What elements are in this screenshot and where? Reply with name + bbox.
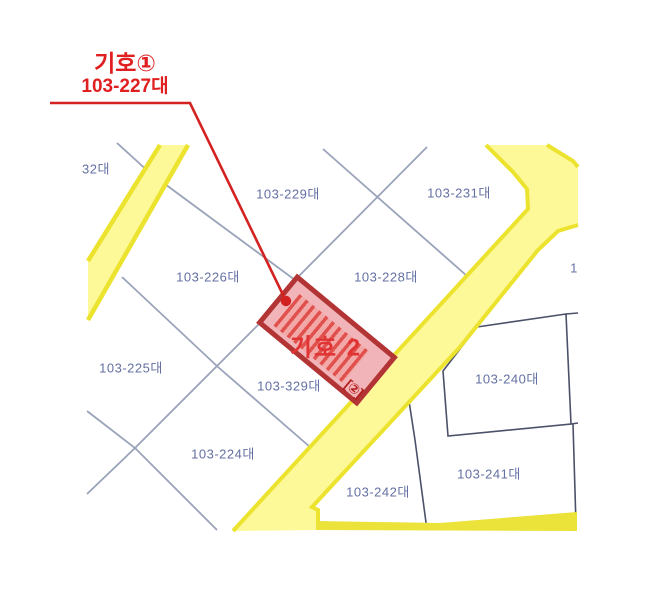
parcel-label-partial: 1 — [570, 261, 578, 276]
boundary-line — [87, 411, 217, 530]
boundary-line — [566, 313, 578, 314]
callout-title: 기호① — [81, 50, 168, 76]
circled-2-marker: [②] — [342, 377, 365, 399]
parcel-label-242: 103-242대 — [346, 482, 410, 501]
parcel-label-226: 103-226대 — [176, 267, 240, 286]
cadastral-map: [②] 기호 2 기호① 103-227대 32대 103-229대 103-2… — [0, 0, 654, 600]
parcel-label-232: 32대 — [82, 159, 110, 178]
boundary-line — [295, 147, 427, 280]
boundary-line — [87, 320, 263, 494]
parcel-label-228: 103-228대 — [354, 267, 418, 286]
parcel-label-224: 103-224대 — [191, 444, 255, 463]
callout-parcel-number: 103-227대 — [81, 76, 168, 98]
parcel-label-225: 103-225대 — [99, 358, 163, 377]
highlight-parcel-label: 기호 2 — [290, 328, 362, 363]
boundary-line — [323, 149, 467, 276]
boundary-line — [573, 424, 576, 525]
parcel-label-231: 103-231대 — [427, 183, 491, 202]
boundary-line — [571, 423, 578, 424]
road-bottom-edge-strip — [316, 512, 577, 531]
callout-text-block: 기호① 103-227대 — [81, 50, 168, 98]
parcel-label-229: 103-229대 — [256, 184, 320, 203]
parcel-label-240: 103-240대 — [475, 369, 539, 388]
parcel-label-329: 103-329대 — [257, 376, 321, 395]
parcel-label-241: 103-241대 — [457, 464, 521, 483]
boundary-line — [407, 388, 427, 530]
